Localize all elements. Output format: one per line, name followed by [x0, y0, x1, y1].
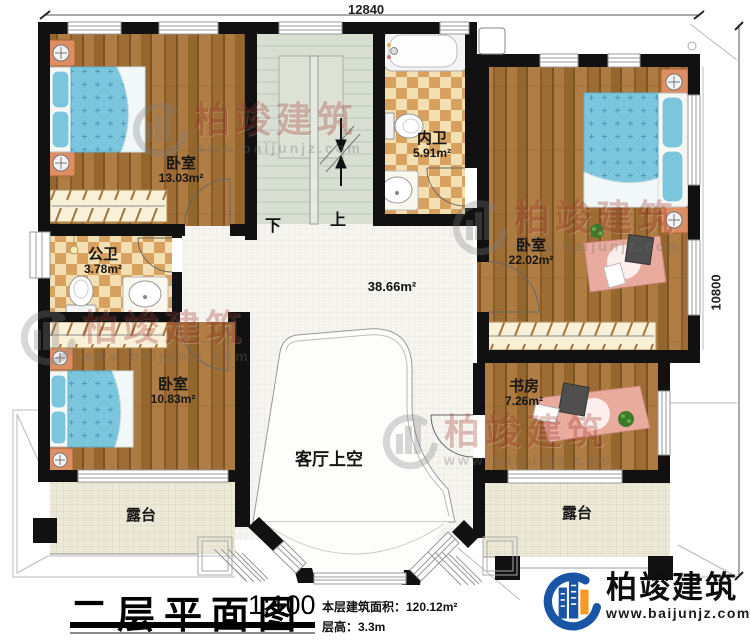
brand-website: www.baijunjz.com: [606, 605, 750, 621]
pillow: [52, 71, 69, 108]
terrace-column: [33, 518, 57, 543]
computer: [625, 234, 654, 264]
pillow: [662, 97, 683, 148]
pillow: [662, 151, 683, 202]
terrace-column: [495, 556, 520, 580]
pillow: [52, 111, 69, 148]
computer: [559, 383, 590, 416]
plant: [590, 224, 604, 238]
sink: [382, 177, 412, 203]
floor-plan-page: 柏竣建筑 www.baijunjz.com 柏竣建筑 www.baijunjz.…: [0, 0, 750, 640]
skylight-window: [479, 28, 505, 54]
brand-logo-icon: [538, 571, 602, 633]
brand-name: 柏竣建筑: [606, 571, 750, 605]
stair-stringer: [310, 56, 318, 224]
brand-logo: 柏竣建筑 www.baijunjz.com: [538, 571, 750, 633]
pillow: [51, 411, 66, 444]
sink: [129, 281, 161, 307]
floor-plan-canvas: [0, 0, 750, 640]
terrace-left-floor: [50, 482, 235, 554]
pillow: [51, 375, 66, 408]
pendant-lamp: [70, 246, 78, 254]
terrace-right-floor: [483, 483, 670, 557]
plant: [618, 411, 634, 427]
